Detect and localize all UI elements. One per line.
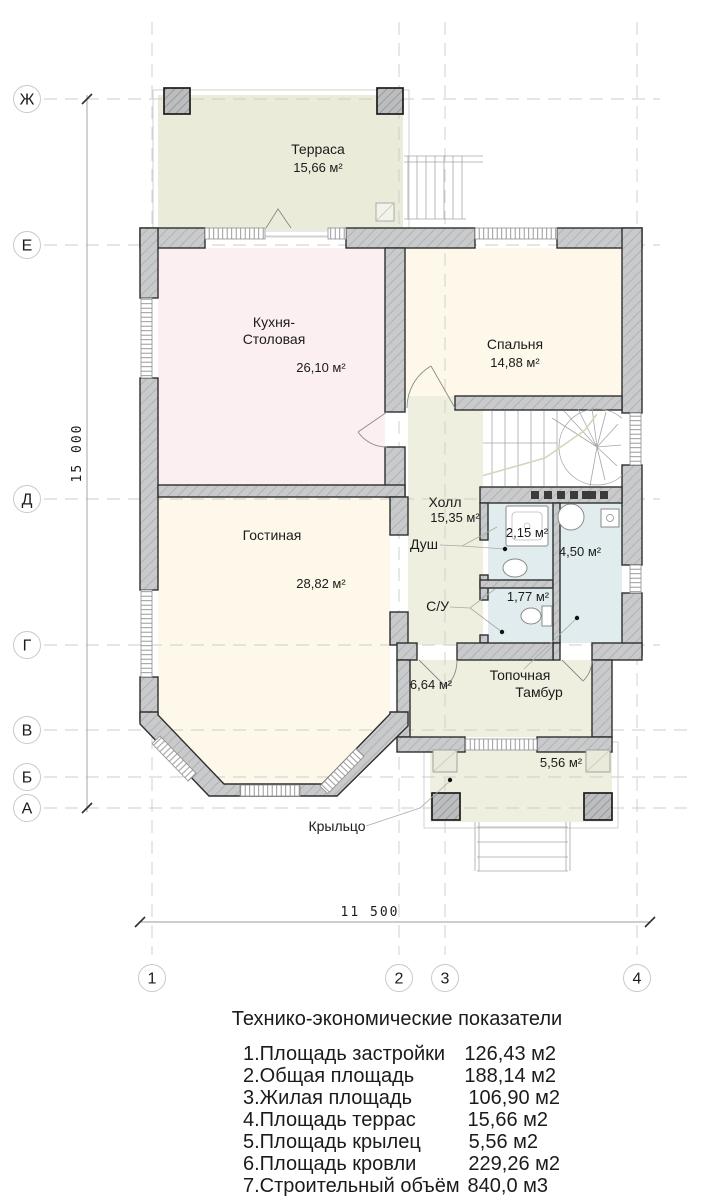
teo-row-label: 2.Общая площадь	[243, 1065, 414, 1087]
entrance-door-band	[465, 739, 537, 750]
porch-post	[584, 793, 612, 820]
axis-row-a: А	[22, 801, 33, 818]
label-bedroom: Спальня	[487, 336, 543, 352]
porch-post	[432, 793, 460, 820]
axis-col-4: 4	[633, 971, 642, 988]
boiler-unit	[558, 504, 584, 530]
label-terrace-area: 15,66 м²	[293, 160, 343, 175]
terrace-corner-mark	[376, 203, 394, 221]
floor-plan-svg: 15 000 11 500 Ж Е Д Г В Б А 1 2 3 4 Терр…	[0, 0, 704, 1200]
label-living: Гостиная	[243, 527, 302, 543]
window-terrace-kitchen	[205, 228, 265, 239]
teo-title: Технико-экономические показатели	[232, 1008, 562, 1030]
dim-horizontal: 11 500	[341, 905, 400, 920]
teo-row-value: 188,14 м2	[464, 1065, 556, 1087]
porch-steps	[475, 822, 570, 871]
terrace-stair	[404, 156, 483, 219]
label-kitchen-1: Кухня-	[253, 314, 295, 330]
window-boiler-right	[630, 565, 641, 593]
teo-row-value: 840,0 м3	[468, 1175, 548, 1197]
equipment-box	[601, 509, 619, 527]
axis-row-b: Б	[22, 770, 33, 787]
label-hall-area: 15,35 м²	[430, 510, 480, 525]
room-kitchen-fill	[158, 248, 385, 485]
label-porch-area: 5,56 м²	[540, 755, 583, 770]
axis-col-3: 3	[441, 971, 450, 988]
toilet-tank	[542, 606, 552, 626]
teo-row-label: 1.Площадь застройки	[243, 1043, 445, 1065]
teo-table: Технико-экономические показатели 1.Площа…	[232, 1008, 562, 1197]
label-hall: Холл	[429, 494, 462, 510]
teo-row-value: 126,43 м2	[464, 1043, 556, 1065]
room-bedroom-fill	[405, 248, 622, 396]
window-living-left	[141, 590, 152, 677]
label-wc-area: 1,77 м²	[507, 589, 550, 604]
terrace-post	[377, 88, 403, 114]
teo-row-label: 7.Строительный объём	[243, 1175, 460, 1197]
axis-col-1: 1	[148, 971, 157, 988]
terrace-post	[164, 88, 190, 114]
label-kitchen-area: 26,10 м²	[296, 360, 346, 375]
label-boiler: Топочная	[490, 667, 551, 683]
teo-row-value: 106,90 м2	[468, 1087, 560, 1109]
axis-row-v: В	[22, 723, 33, 740]
window-bedroom	[475, 228, 557, 239]
label-terrace: Терраса	[291, 141, 345, 157]
axis-row-e: Е	[22, 238, 33, 255]
axis-row-g: Г	[23, 638, 32, 655]
room-stairwell-fill	[483, 410, 622, 487]
teo-row-label: 5.Площадь крылец	[243, 1131, 421, 1153]
sink	[503, 559, 527, 577]
teo-row-value: 229,26 м2	[468, 1153, 560, 1175]
axis-col-2: 2	[395, 971, 404, 988]
axis-row-zh: Ж	[20, 92, 35, 109]
label-shower-area: 2,15 м²	[506, 525, 549, 540]
label-porch: Крыльцо	[308, 818, 365, 834]
label-living-area: 28,82 м²	[296, 576, 346, 591]
teo-row-label: 4.Площадь террас	[243, 1109, 416, 1131]
label-kitchen-2: Столовая	[243, 331, 306, 347]
window-terrace-small	[328, 228, 346, 239]
floor-plan-page: 15 000 11 500 Ж Е Д Г В Б А 1 2 3 4 Терр…	[0, 0, 704, 1200]
teo-row-label: 3.Жилая площадь	[243, 1087, 412, 1109]
window-bay-bottom	[240, 785, 300, 796]
window-kitchen-left	[141, 298, 152, 378]
label-bedroom-area: 14,88 м²	[490, 355, 540, 370]
teo-row-value: 5,56 м2	[469, 1131, 538, 1153]
label-vestibule: Тамбур	[515, 684, 563, 700]
dim-vertical: 15 000	[70, 424, 85, 483]
axis-row-d: Д	[22, 492, 33, 509]
label-wc: С/У	[426, 598, 449, 614]
label-vestibule-area: 6,64 м²	[410, 677, 453, 692]
label-boiler-area: 4,50 м²	[559, 544, 602, 559]
teo-row-value: 15,66 м2	[468, 1109, 548, 1131]
toilet-bowl	[521, 608, 541, 624]
window-stair-right	[630, 413, 641, 465]
teo-row-label: 6.Площадь кровли	[243, 1153, 416, 1175]
label-shower: Душ	[410, 536, 438, 552]
room-terrace-fill	[158, 95, 403, 230]
